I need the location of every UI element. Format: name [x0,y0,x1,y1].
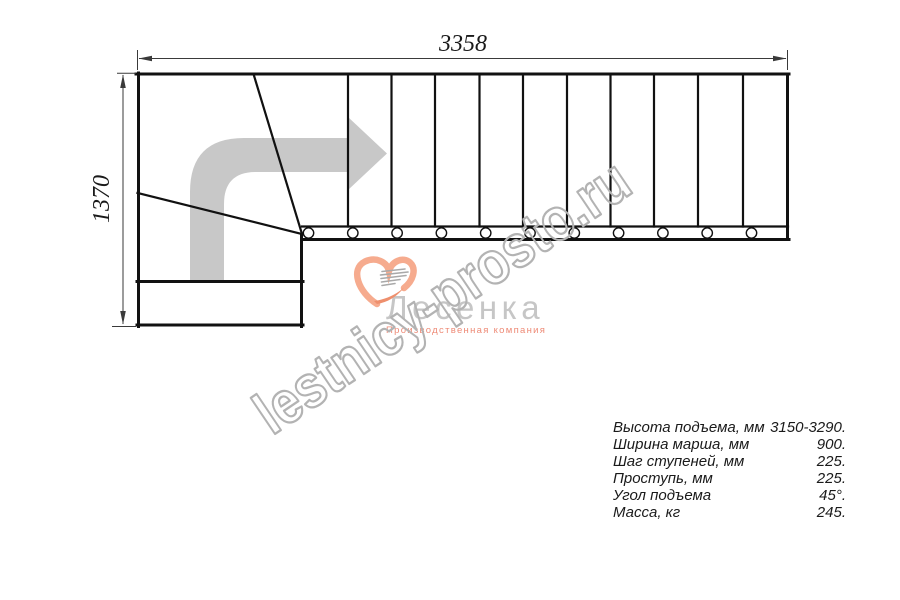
spec-row: Масса, кг 245. [613,504,846,521]
spec-label: Угол подъема [613,487,711,504]
spec-row: Проступь, мм 225. [613,470,846,487]
spec-row: Высота подъема, мм 3150-3290. [613,419,846,436]
spec-value: 900. [817,436,846,453]
logo-block: Лесенка Производственная компания Высота… [0,0,900,600]
company-tagline: Производственная компания [386,326,546,336]
spec-value: 3150-3290. [770,419,846,436]
spec-label: Масса, кг [613,504,680,521]
spec-row: Ширина марша, мм 900. [613,436,846,453]
spec-label: Проступь, мм [613,470,713,487]
specs-table: Высота подъема, мм 3150-3290. Ширина мар… [613,419,846,521]
drawing-canvas: Лесенка Производственная компания Высота… [0,0,900,600]
spec-row: Шаг ступеней, мм 225. [613,453,846,470]
spec-label: Высота подъема, мм [613,419,765,436]
spec-value: 225. [817,470,846,487]
spec-value: 225. [817,453,846,470]
spec-label: Шаг ступеней, мм [613,453,744,470]
spec-value: 45°. [819,487,846,504]
spec-value: 245. [817,504,846,521]
spec-row: Угол подъема 45°. [613,487,846,504]
spec-label: Ширина марша, мм [613,436,749,453]
company-name: Лесенка [386,291,544,324]
